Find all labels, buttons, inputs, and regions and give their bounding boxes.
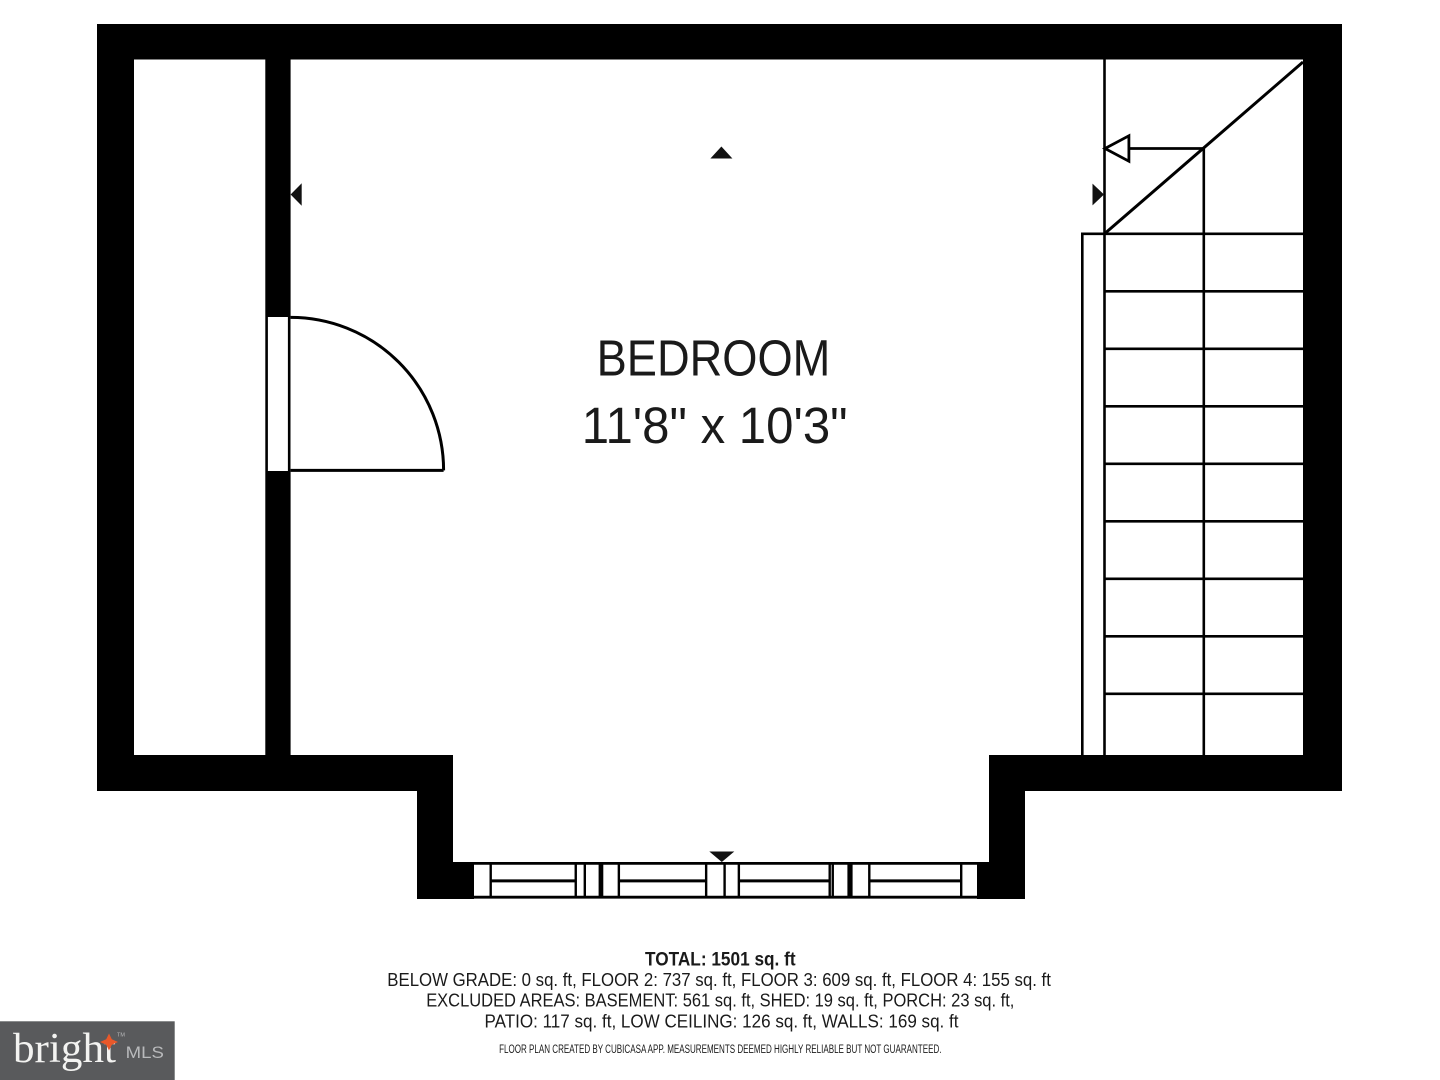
svg-text:TOTAL: 1501 sq. ft: TOTAL: 1501 sq. ft [645,949,796,970]
svg-text:TM: TM [117,1033,125,1039]
svg-text:MLS: MLS [126,1043,164,1062]
svg-text:FLOOR PLAN CREATED BY CUBICASA: FLOOR PLAN CREATED BY CUBICASA APP. MEAS… [499,1044,941,1056]
svg-text:BEDROOM: BEDROOM [597,329,831,386]
svg-text:BELOW GRADE: 0 sq. ft, FLOOR 2: BELOW GRADE: 0 sq. ft, FLOOR 2: 737 sq. … [387,969,1051,990]
svg-text:11'8" x 10'3": 11'8" x 10'3" [582,397,848,454]
svg-text:EXCLUDED AREAS: BASEMENT: 561: EXCLUDED AREAS: BASEMENT: 561 sq. ft, SH… [426,990,1014,1011]
svg-text:PATIO: 117 sq. ft, LOW CEILING: PATIO: 117 sq. ft, LOW CEILING: 126 sq. … [485,1011,959,1032]
svg-text:bright: bright [13,1025,116,1072]
